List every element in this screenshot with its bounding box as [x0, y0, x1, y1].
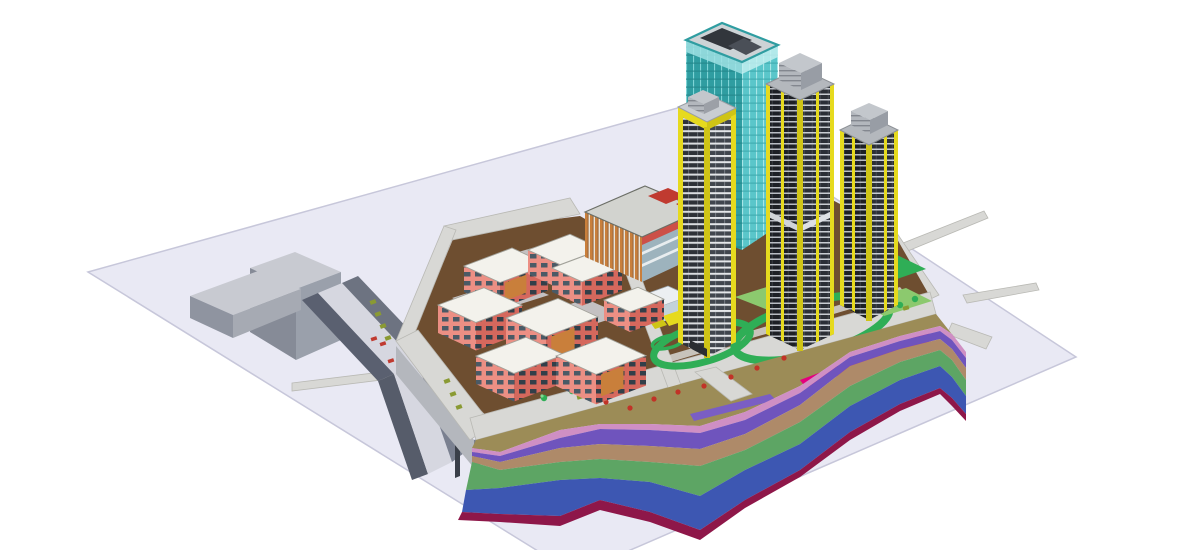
residential-tower-east: [840, 103, 898, 321]
residential-tower-middle: [766, 53, 834, 351]
residential-tower-west: [678, 90, 736, 358]
model-viewport[interactable]: [0, 0, 1200, 550]
bim-3d-view[interactable]: [0, 0, 1200, 550]
